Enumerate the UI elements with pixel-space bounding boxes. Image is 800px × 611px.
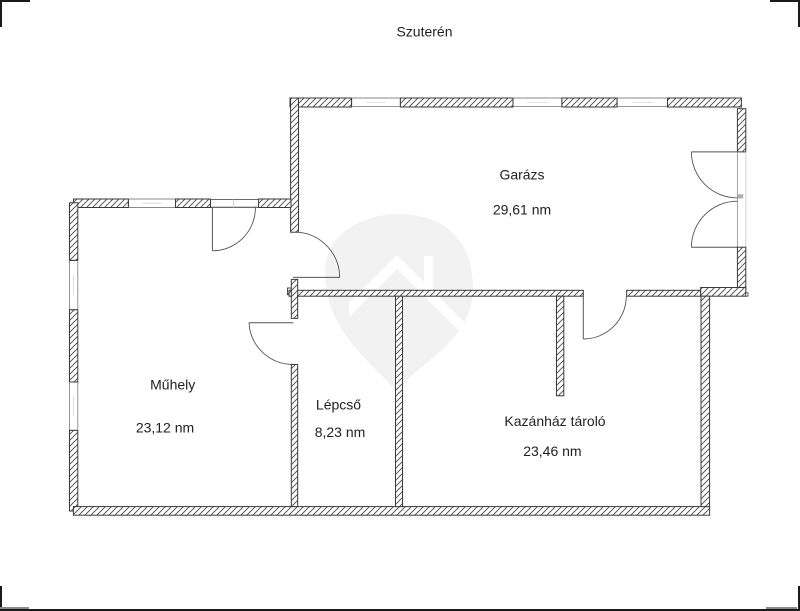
svg-text:Lépcső: Lépcső — [316, 397, 361, 413]
svg-text:23,46 nm: 23,46 nm — [523, 443, 581, 459]
svg-text:29,61 nm: 29,61 nm — [493, 202, 551, 218]
svg-text:Műhely: Műhely — [150, 377, 195, 393]
svg-text:Kazánház tároló: Kazánház tároló — [504, 413, 605, 429]
svg-text:Szuterén: Szuterén — [396, 24, 452, 40]
svg-text:23,12 nm: 23,12 nm — [136, 420, 194, 436]
svg-text:Garázs: Garázs — [499, 167, 544, 183]
svg-text:8,23 nm: 8,23 nm — [315, 424, 366, 440]
